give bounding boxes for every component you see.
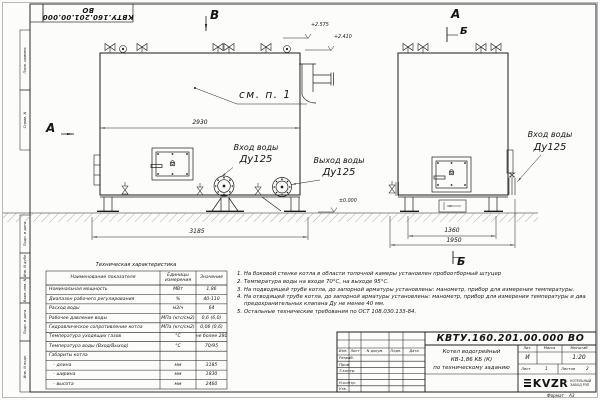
titleblock-lit-value: И bbox=[518, 353, 537, 363]
spec-row-units: м3/ч bbox=[160, 304, 196, 313]
titleblock-col-izm: Изм. bbox=[337, 349, 349, 355]
note-2: 2. Температура воды на входе 70°С, на вы… bbox=[237, 279, 594, 286]
format-note: Формат А3 bbox=[547, 394, 575, 398]
spec-col-name: Наименование показателя bbox=[46, 271, 160, 285]
titleblock-sig-razrab: Разраб. bbox=[339, 356, 354, 360]
spec-row-value: 40-110 bbox=[196, 294, 227, 303]
spec-row-name: Номинальная мощность bbox=[46, 285, 160, 294]
spec-row-units: МПа (кгс/см2) bbox=[160, 323, 196, 332]
supports-side bbox=[398, 197, 508, 212]
manufacturer-logo: KVZR КОТЕЛЬНЫЙ ЗАВОД РЭП bbox=[519, 374, 596, 392]
spec-row-units: мм bbox=[160, 361, 196, 370]
logo-sub-line2: ЗАВОД РЭП bbox=[570, 383, 591, 387]
dim-3185: 3185 bbox=[180, 229, 214, 235]
outlet-flange-front bbox=[273, 178, 292, 197]
titleblock-scale-header: Масштаб bbox=[562, 346, 596, 352]
drawing-sheet: КВТУ.160.201.00.000 ВО Перв. примен. Спр… bbox=[0, 0, 600, 400]
ground-line bbox=[3, 213, 538, 222]
titleblock-col-ndoc: N докум. bbox=[361, 349, 389, 355]
stamp-perv-primen: Перв. примен. bbox=[20, 30, 30, 90]
spec-row-name: Диапазон рабочего регулирования bbox=[46, 294, 160, 303]
spec-row-value: 1,86 bbox=[196, 285, 227, 294]
spec-table-title: Техническая характеристика bbox=[60, 263, 212, 268]
spec-row-value: не более 280 bbox=[196, 332, 227, 341]
spec-col-units: Единицы измерения bbox=[160, 271, 196, 285]
front-annotations bbox=[61, 16, 337, 240]
note-1: 1. На боковой стенке котла в области топ… bbox=[237, 271, 594, 278]
titleblock-sig-prov: Пров. bbox=[339, 363, 350, 367]
stamp-inv-podl: Инв. N подл. bbox=[20, 341, 30, 392]
elevation-2410: +2.410 bbox=[334, 36, 352, 41]
product-title-line3: по техническому заданию bbox=[433, 364, 510, 372]
side-door bbox=[432, 157, 471, 192]
section-marker-b-bottom: Б bbox=[457, 256, 465, 267]
note-3: 3. На подводящей трубе котла, до запорно… bbox=[237, 287, 594, 294]
view-marker-v: В bbox=[210, 9, 219, 21]
titleblock-col-podp: Подп. bbox=[389, 349, 403, 355]
titleblock-lit-header: Лит. bbox=[518, 346, 537, 352]
boiler-front-view bbox=[94, 44, 334, 212]
spec-row-name: Температура уходящих газов bbox=[46, 332, 160, 341]
stamp-podp-data-2: Подп. и дата bbox=[20, 303, 30, 341]
titleblock-product-title: Котел водогрейный КВ-1,86 КБ (К) по техн… bbox=[427, 347, 516, 373]
titleblock-col-list: Лист bbox=[349, 349, 361, 355]
elevation-zero: ±0.000 bbox=[339, 200, 357, 205]
titleblock-sig-tkontr: Т.контр. bbox=[339, 369, 355, 373]
titleblock-mass-header: Масса bbox=[537, 346, 562, 352]
spec-row-value bbox=[196, 351, 227, 360]
spec-row-name: - высота bbox=[46, 380, 160, 389]
inlet-label-front: Вход воды bbox=[222, 144, 290, 152]
inlet-dn-side: Ду125 bbox=[524, 143, 576, 153]
view-marker-a-left: А bbox=[46, 122, 55, 134]
see-item-note: см. п. 1 bbox=[239, 90, 292, 101]
stamp-podp-data-1: Подп. и дата bbox=[20, 215, 30, 253]
spec-row-units bbox=[160, 351, 196, 360]
spec-col-value: Значение bbox=[196, 271, 227, 285]
product-title-line2: КВ-1,86 КБ (К) bbox=[451, 356, 492, 364]
inlet-label-side: Вход воды bbox=[520, 131, 580, 139]
titleblock-sheets-value: 2 bbox=[586, 367, 589, 371]
stamp-inv-dubl: Инв. N дубл. bbox=[20, 253, 30, 278]
format-label: Формат bbox=[547, 394, 564, 398]
spec-row-value: 64 bbox=[196, 304, 227, 313]
spec-row-name: - длина bbox=[46, 361, 160, 370]
side-left-valve bbox=[389, 181, 399, 196]
section-marker-b-top: Б bbox=[460, 27, 468, 37]
dim-1360: 1360 bbox=[435, 228, 469, 234]
titleblock-sig-utv: Утв. bbox=[339, 387, 347, 391]
titleblock-sheet-label: Лист bbox=[521, 367, 531, 371]
spec-row-name: Расход воды bbox=[46, 304, 160, 313]
spec-row-value: 1830 bbox=[196, 370, 227, 379]
titleblock-sheets-label: Листов bbox=[561, 367, 575, 371]
spec-row-units: °С bbox=[160, 342, 196, 351]
technical-notes: 1. На боковой стенке котла в области топ… bbox=[237, 271, 594, 317]
boiler-side-view bbox=[389, 44, 515, 213]
spec-row-name: Габариты котла bbox=[46, 351, 160, 360]
format-value: А3 bbox=[569, 394, 575, 398]
note-4: 4. На отводящей трубе котла, до запорной… bbox=[237, 294, 594, 308]
spec-row-name: Температура воды (Вход/Выход) bbox=[46, 342, 160, 351]
elevation-2575: +2.575 bbox=[311, 24, 329, 29]
inlet-dn-front: Ду125 bbox=[230, 155, 282, 165]
supports-front bbox=[97, 197, 306, 211]
product-title-line1: Котел водогрейный bbox=[443, 348, 501, 356]
spec-row-units: мм bbox=[160, 370, 196, 379]
stamp-vzam-inv: Взам. инв. N bbox=[20, 278, 30, 303]
titleblock-doc-number: КВТУ.160.201.00.000 ВО bbox=[427, 333, 594, 344]
outlet-label-front: Выход воды bbox=[302, 157, 376, 165]
spec-row-name: Рабочее давление воды bbox=[46, 313, 160, 322]
top-valves-front bbox=[105, 44, 291, 54]
note-5: 5. Остальные технические требования по О… bbox=[237, 309, 594, 316]
drain-valves-front bbox=[122, 182, 261, 195]
spec-row-value: 70/95 bbox=[196, 342, 227, 351]
outlet-dn-front: Ду125 bbox=[312, 168, 366, 178]
spec-row-units: мм bbox=[160, 380, 196, 389]
titleblock-sig-nkontr: Н.контр. bbox=[339, 381, 356, 385]
view-marker-a-top: А bbox=[451, 8, 460, 20]
spec-row-units: МПа (кгс/см2) bbox=[160, 313, 196, 322]
spec-row-name: - ширина bbox=[46, 370, 160, 379]
logo-mark-icon bbox=[524, 379, 531, 388]
spec-table-body: Номинальная мощность МВт 1,86 Диапазон р… bbox=[46, 285, 227, 389]
spec-row-value: 2460 bbox=[196, 380, 227, 389]
spec-row-value: 0,06 (0,6) bbox=[196, 323, 227, 332]
top-doc-number-box: КВТУ.160.201.00.000 ВО bbox=[43, 4, 133, 22]
spec-row-units: °С bbox=[160, 332, 196, 341]
logo-text: KVZR bbox=[533, 377, 568, 390]
spec-row-value: 0,6 (6,0) bbox=[196, 313, 227, 322]
spec-row-name: Гидравлическое сопротивление котла bbox=[46, 323, 160, 332]
smoke-duct bbox=[299, 64, 334, 103]
stamp-sprav-n: Справ. N bbox=[20, 90, 30, 150]
dim-2930: 2930 bbox=[183, 120, 217, 126]
titleblock-col-data: Дата bbox=[403, 349, 425, 355]
spec-row-units: МВт bbox=[160, 285, 196, 294]
spec-row-units: % bbox=[160, 294, 196, 303]
inlet-flange-front bbox=[214, 176, 234, 196]
front-door bbox=[151, 148, 193, 180]
dim-1950: 1950 bbox=[437, 238, 471, 244]
spec-row-value: 3185 bbox=[196, 361, 227, 370]
titleblock-scale-value: 1:20 bbox=[562, 353, 596, 363]
titleblock-sheet-value: 1 bbox=[545, 367, 548, 371]
top-valves-side bbox=[403, 44, 501, 54]
